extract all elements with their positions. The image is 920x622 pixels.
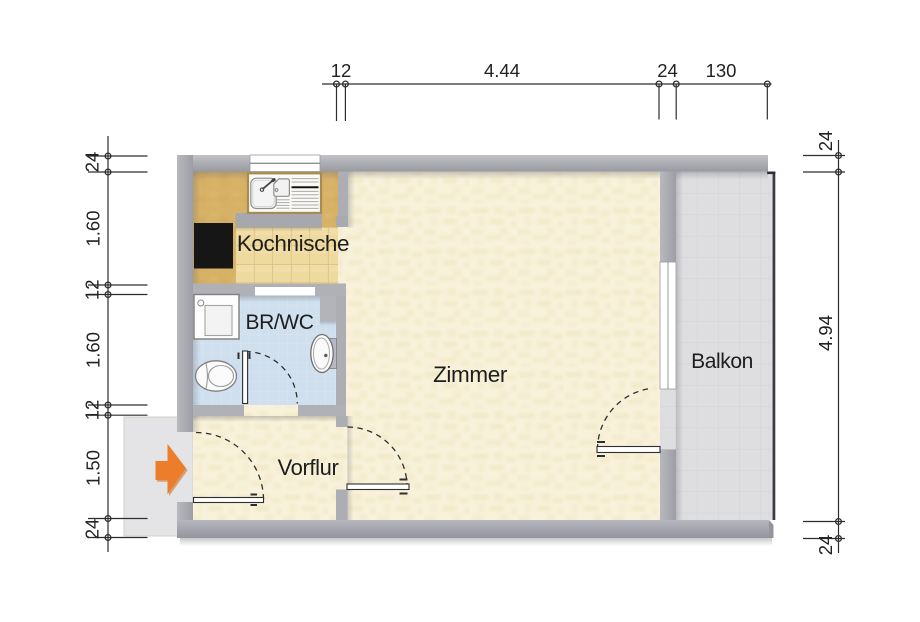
svg-text:4.44: 4.44: [484, 60, 520, 81]
svg-text:24: 24: [815, 131, 836, 152]
svg-text:Balkon: Balkon: [691, 350, 753, 373]
svg-text:1.60: 1.60: [83, 332, 104, 368]
svg-text:4.94: 4.94: [815, 315, 836, 351]
svg-text:Vorflur: Vorflur: [278, 455, 339, 480]
svg-text:24: 24: [82, 519, 103, 540]
svg-text:Zimmer: Zimmer: [433, 362, 508, 387]
svg-text:12: 12: [331, 60, 352, 81]
svg-text:1.60: 1.60: [83, 210, 104, 246]
svg-text:24: 24: [82, 152, 103, 173]
svg-text:Kochnische: Kochnische: [237, 231, 349, 256]
svg-text:12: 12: [82, 400, 103, 421]
svg-text:24: 24: [815, 535, 836, 556]
svg-text:130: 130: [706, 60, 737, 81]
svg-text:BR/WC: BR/WC: [246, 311, 314, 334]
svg-text:12: 12: [82, 280, 103, 301]
svg-text:1.50: 1.50: [83, 450, 104, 486]
svg-text:24: 24: [657, 60, 678, 81]
